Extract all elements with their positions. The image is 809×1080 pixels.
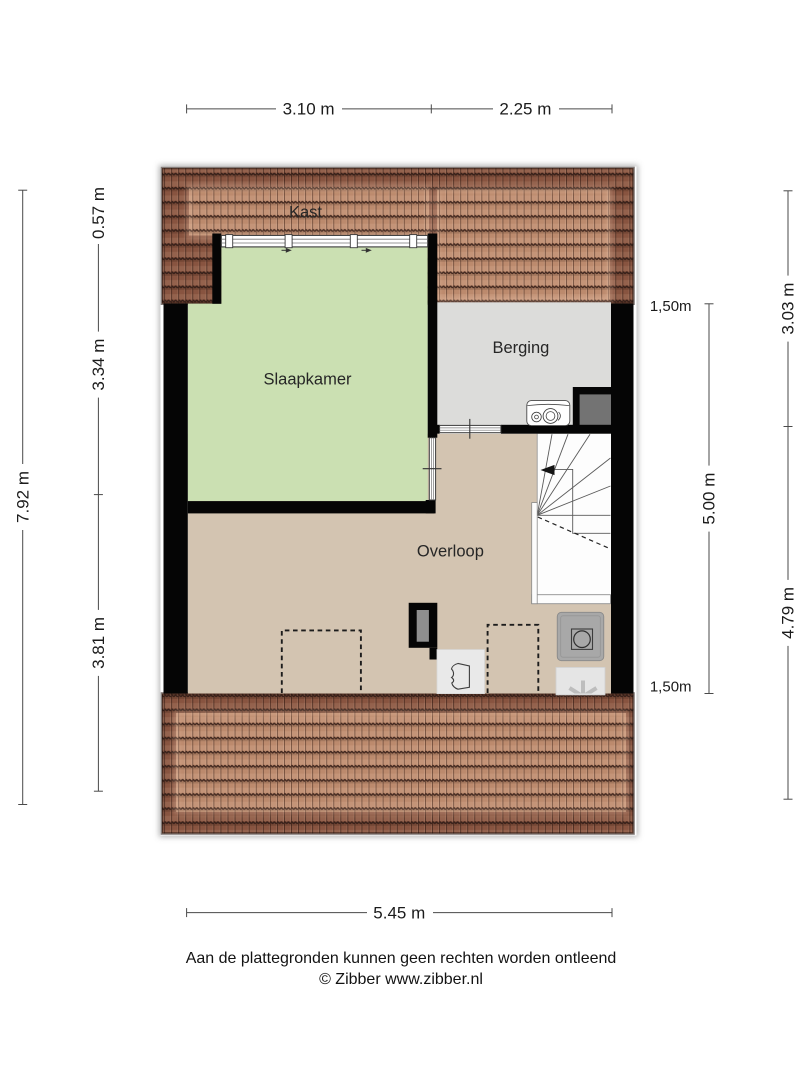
svg-text:0.57 m: 0.57 m xyxy=(89,187,108,239)
svg-text:Aan de plattegronden kunnen ge: Aan de plattegronden kunnen geen rechten… xyxy=(186,950,617,967)
svg-text:2.25 m: 2.25 m xyxy=(499,100,551,119)
svg-text:Slaapkamer: Slaapkamer xyxy=(263,370,352,388)
svg-text:© Zibber www.zibber.nl: © Zibber www.zibber.nl xyxy=(319,971,483,988)
svg-text:3.10 m: 3.10 m xyxy=(283,100,335,119)
svg-text:7.92 m: 7.92 m xyxy=(13,471,32,523)
svg-text:5.45 m: 5.45 m xyxy=(373,903,425,922)
svg-text:5.00 m: 5.00 m xyxy=(700,473,719,525)
svg-text:3.34 m: 3.34 m xyxy=(89,339,108,391)
svg-text:4.79 m: 4.79 m xyxy=(779,587,798,639)
svg-text:3.03 m: 3.03 m xyxy=(779,283,798,335)
svg-text:Berging: Berging xyxy=(492,339,549,357)
svg-text:Kast: Kast xyxy=(289,204,322,222)
svg-text:1,50m: 1,50m xyxy=(650,298,692,315)
svg-text:3.81 m: 3.81 m xyxy=(89,617,108,669)
svg-text:Overloop: Overloop xyxy=(417,542,484,560)
svg-text:1,50m: 1,50m xyxy=(650,679,692,696)
